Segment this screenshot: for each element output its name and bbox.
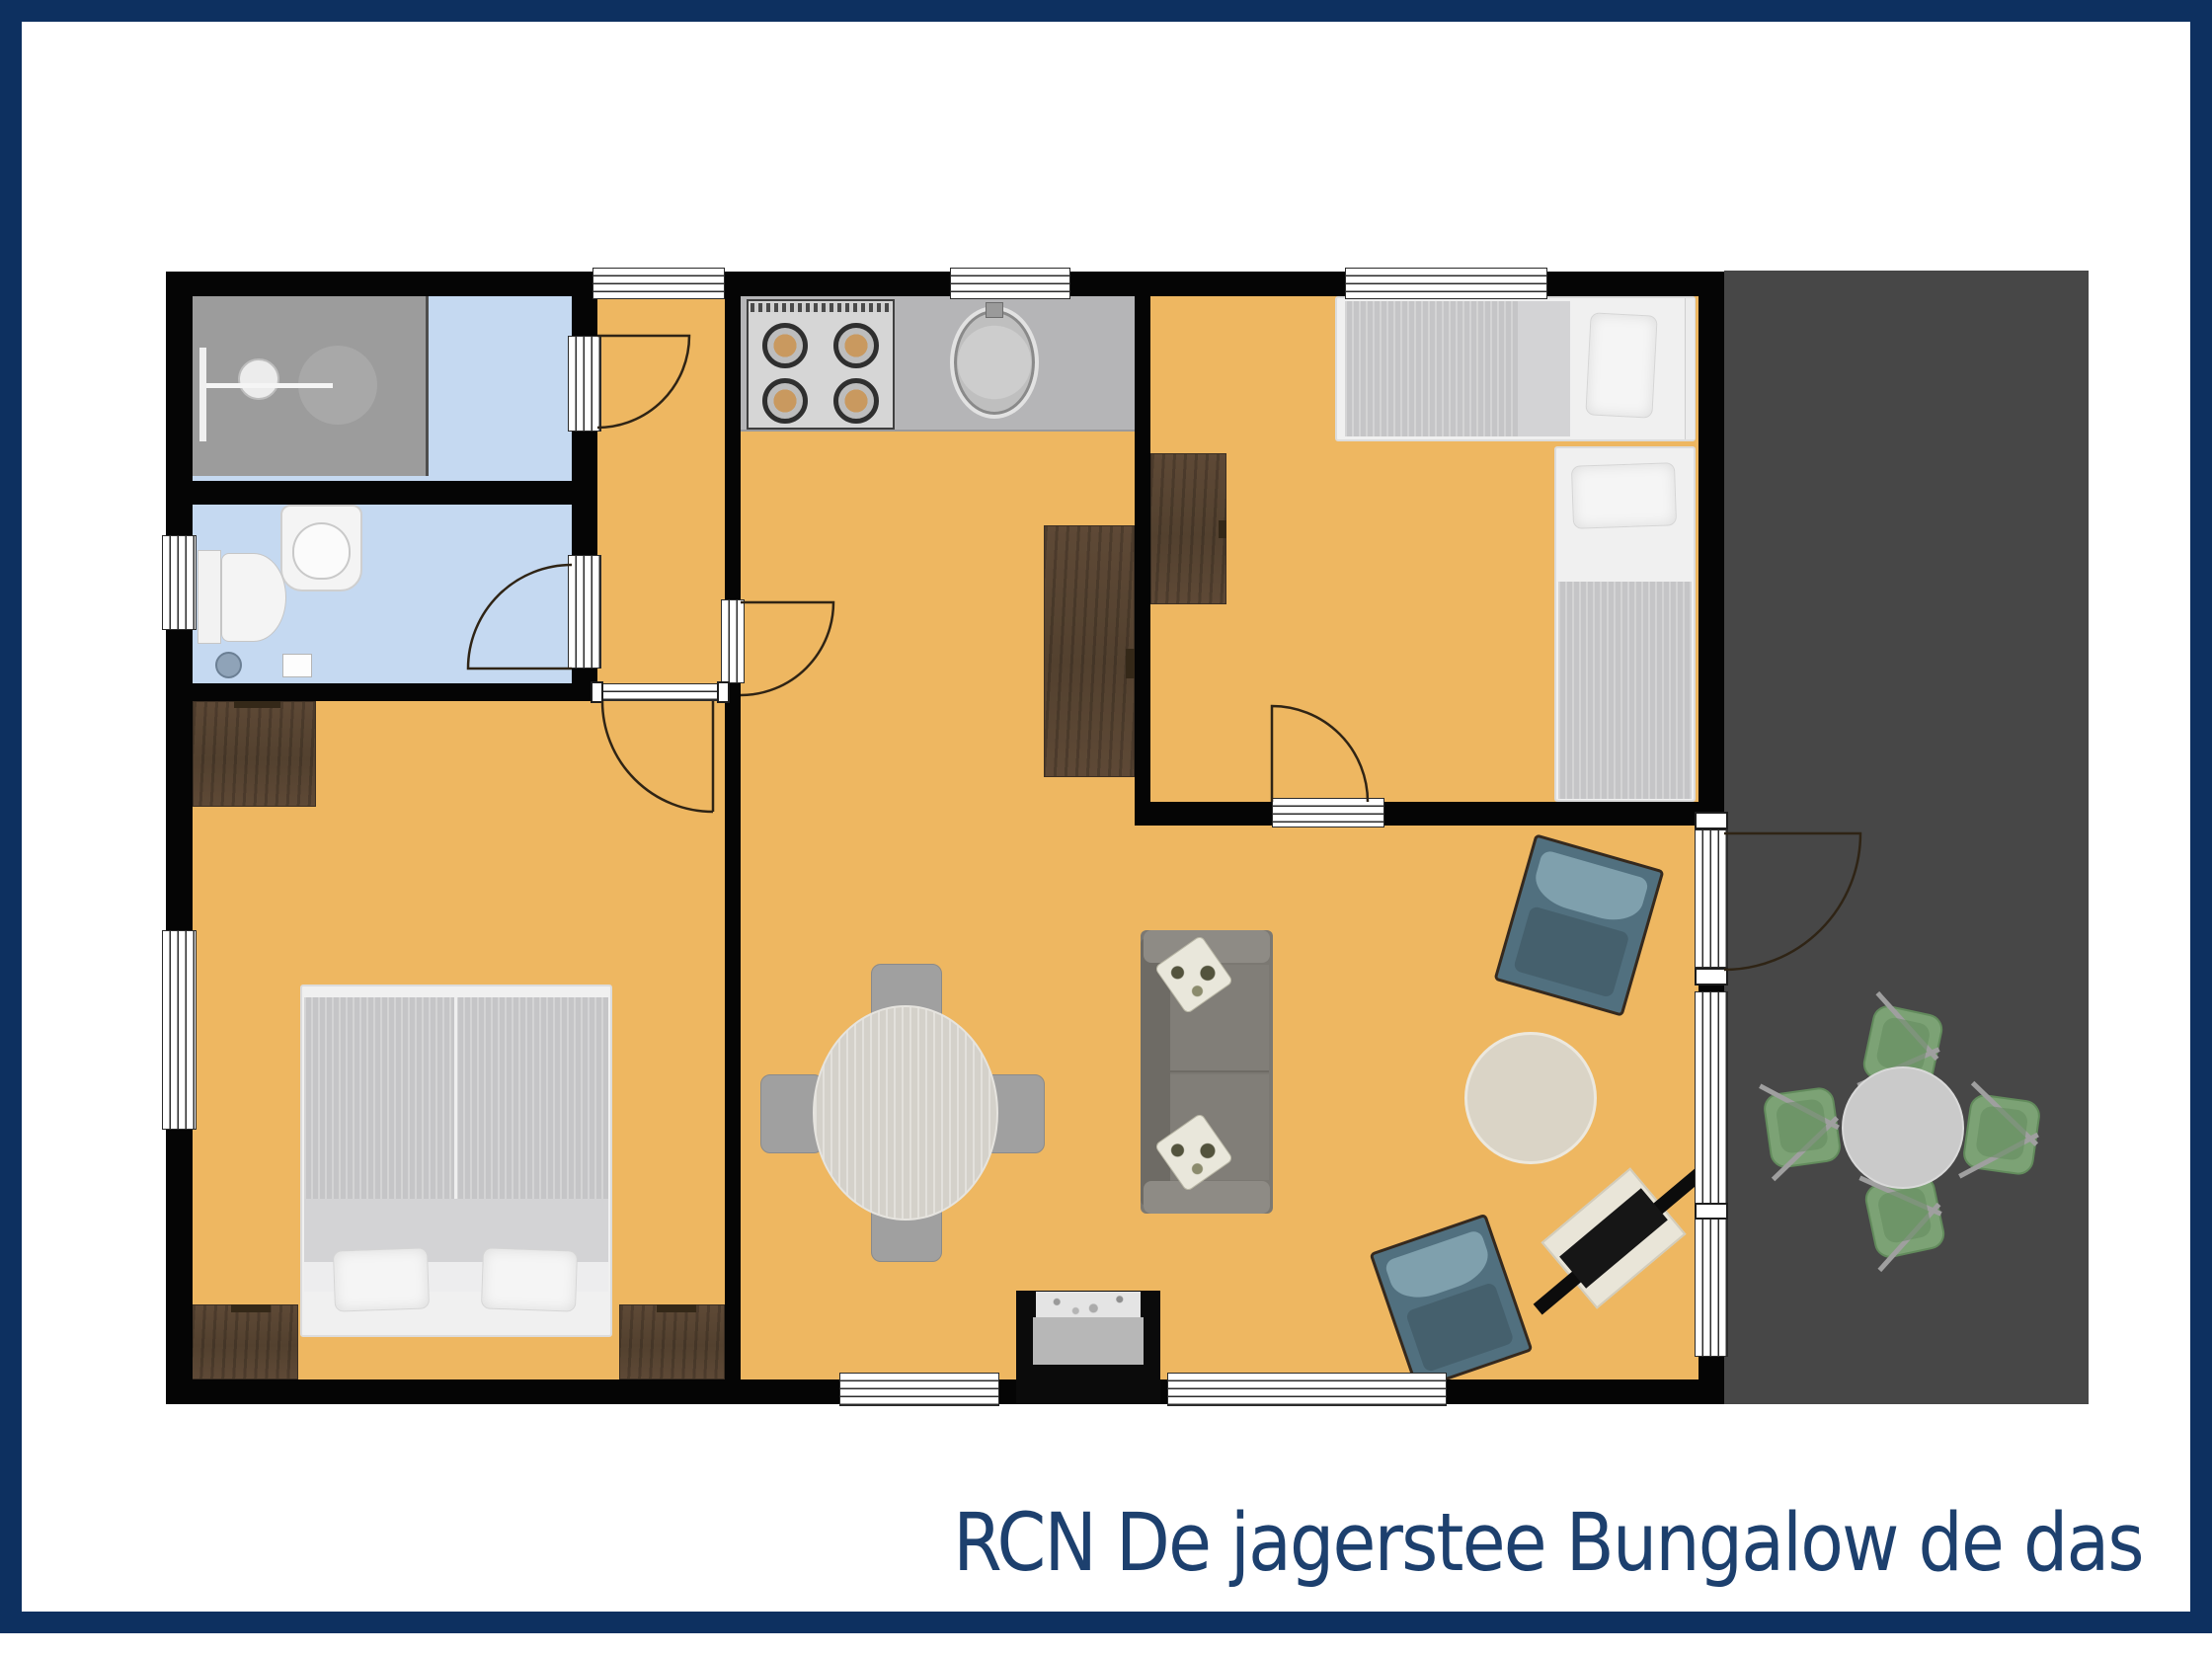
pillow [1585,312,1657,418]
toilet-icon [221,553,286,642]
wall-shower-toilet [166,481,597,505]
stove-grill [750,303,891,312]
single-bed-duvet [1345,301,1518,436]
terrace-door-frame [1695,829,1728,968]
nightstand-handle [657,1304,696,1312]
terrace-chair [1762,1085,1843,1169]
pillow [481,1247,578,1311]
terrace-table [1842,1066,1964,1189]
stove-icon [747,299,895,430]
frame-post [1695,968,1728,985]
kitchen-door-frame [721,599,745,683]
floor-plan-page: RCN De jagerstee Bungalow de das [0,0,2212,1633]
wall-master-living [725,296,741,1379]
coffee-table [1464,1032,1597,1164]
bedroom2-window [1345,268,1547,299]
bedroom2-desk [1150,453,1226,604]
cabinet-handle [1126,649,1135,678]
master-desk [193,701,316,807]
living-window-left [839,1373,999,1406]
frame-post [1695,812,1728,829]
toilet-door-frame [568,555,601,669]
pillow [333,1247,430,1311]
wall-bedroom2-left [1135,272,1150,826]
duvet-split [454,997,457,1199]
wash-basin-icon [280,505,362,591]
kitchen-sink-icon [950,306,1039,419]
toilet-tank [197,550,221,644]
terrace-side-window [1695,991,1728,1357]
burner-icon [762,378,808,424]
nightstand-left [192,1304,298,1379]
frame-post [717,681,730,703]
terrace-chair [1961,1092,2042,1176]
toilet-paper-holder [282,654,312,677]
burner-icon [833,323,879,368]
single-bed-band [1518,301,1570,436]
shower-head-icon [238,358,279,400]
toilet-window [162,535,197,630]
nightstand-handle [231,1304,271,1312]
sofa-armrest [1144,1181,1270,1214]
shower-pole-icon [199,348,206,441]
burner-icon [762,323,808,368]
bedroom2-door-frame [1272,798,1384,827]
bed-headboard [1685,298,1695,439]
faucet-icon [986,302,1003,318]
frame-post [591,681,603,703]
nightstand-right [619,1304,725,1379]
pillow [1571,462,1677,529]
shower-door-frame [568,336,601,432]
burner-icon [833,378,879,424]
master-window [162,930,197,1130]
wall-bedroom2-bottom [1135,802,1724,826]
kitchen-cabinet [1044,525,1135,777]
hall-door-frame [597,683,725,701]
wall-toilet-bottom [166,683,597,701]
wall-left [166,272,193,1404]
dining-table [813,1005,998,1221]
floor-drain-icon [215,652,242,678]
fireplace-hearth [1033,1317,1144,1365]
basin-bowl [292,522,351,580]
shower-arm-icon [206,383,333,388]
page-title: RCN De jagerstee Bungalow de das [953,1497,2143,1590]
fireplace-mantel [1036,1292,1141,1317]
kitchen-window [950,268,1070,299]
living-window-right [1167,1373,1447,1406]
front-door-window [592,268,725,299]
frame-post [1695,1203,1728,1220]
desk-handle [1219,520,1226,538]
single-bed-duvet [1558,582,1692,799]
